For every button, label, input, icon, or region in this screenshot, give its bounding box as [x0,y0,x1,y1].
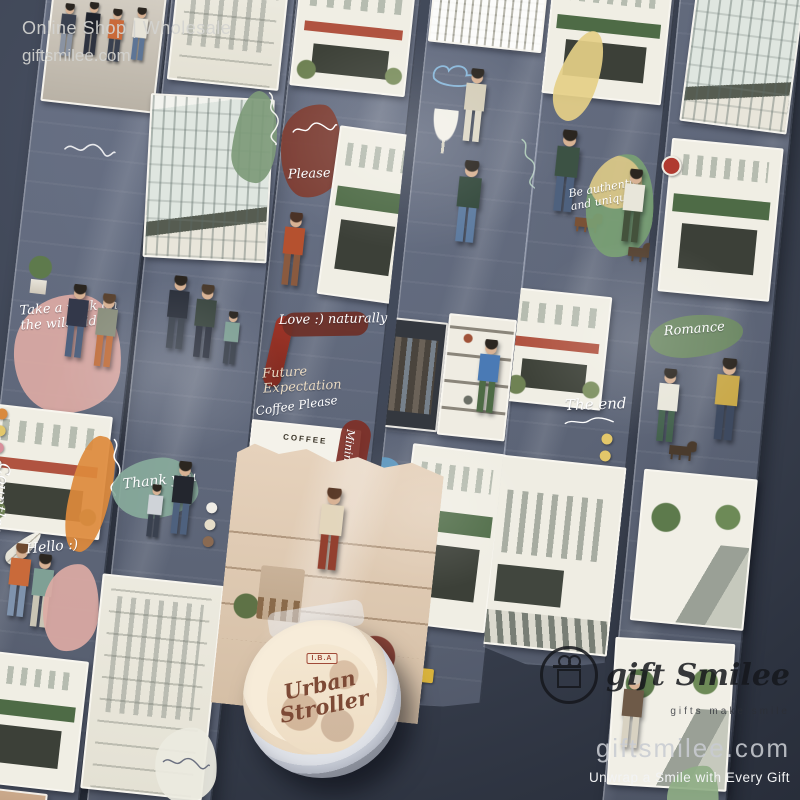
brand-slogan: Unwrap a Smile with Every Gift [530,770,790,785]
script-text: The end [565,395,627,414]
logo-tagline: gifts make smile [530,706,790,717]
logo-text: gift Smilee [606,658,790,693]
roll-label: I.B.A Urban Stroller [267,644,377,754]
watermark-line1: Online Shop | Wholesale [22,18,231,39]
person-sticker [218,310,245,365]
dog-sticker [626,241,652,263]
building-sticker [428,0,548,53]
building-sticker [289,0,416,97]
person-sticker [649,367,686,444]
person-sticker [447,159,489,245]
script-text: Love :) naturally [279,312,389,329]
building-sticker [630,469,758,631]
watermark-shop-info: Online Shop | Wholesale giftsmilee.com [22,18,231,66]
person-sticker [456,67,494,144]
brand-block: gift Smilee gifts make smile giftsmilee.… [530,646,790,785]
dot [206,502,218,514]
logo-row: gift Smilee [530,646,790,704]
dog-sticker [665,439,697,462]
person-sticker [274,211,312,288]
dots-sticker [202,502,218,548]
site-url: giftsmilee.com [530,733,790,764]
product-photo: Take a walk on the wild side Countless H… [0,0,800,800]
dot [0,408,8,420]
washi-tape-roll: I.B.A Urban Stroller [243,620,401,778]
dot [204,519,216,531]
person-sticker [186,283,224,360]
building-sticker [0,648,89,793]
watermark-line2: giftsmilee.com [22,46,231,66]
scribble-icon [563,415,615,429]
dot [202,536,214,548]
script-text: Future Expectation [262,361,387,397]
plant-sticker [25,254,55,295]
dot [601,433,613,445]
roll-title: Urban Stroller [267,663,377,729]
script-text: Please [288,167,331,183]
person-sticker [706,357,747,443]
gift-box-icon [540,646,598,704]
roll-brand-text: I.B.A [307,653,338,664]
person-sticker [310,486,352,572]
gift-body-icon [557,669,581,688]
gift-lid-icon [553,665,581,668]
script-text: Coffee Please [255,394,338,419]
scribble-icon [62,138,118,162]
building-sticker [679,0,800,135]
person-sticker [163,460,201,537]
dot [599,450,611,462]
